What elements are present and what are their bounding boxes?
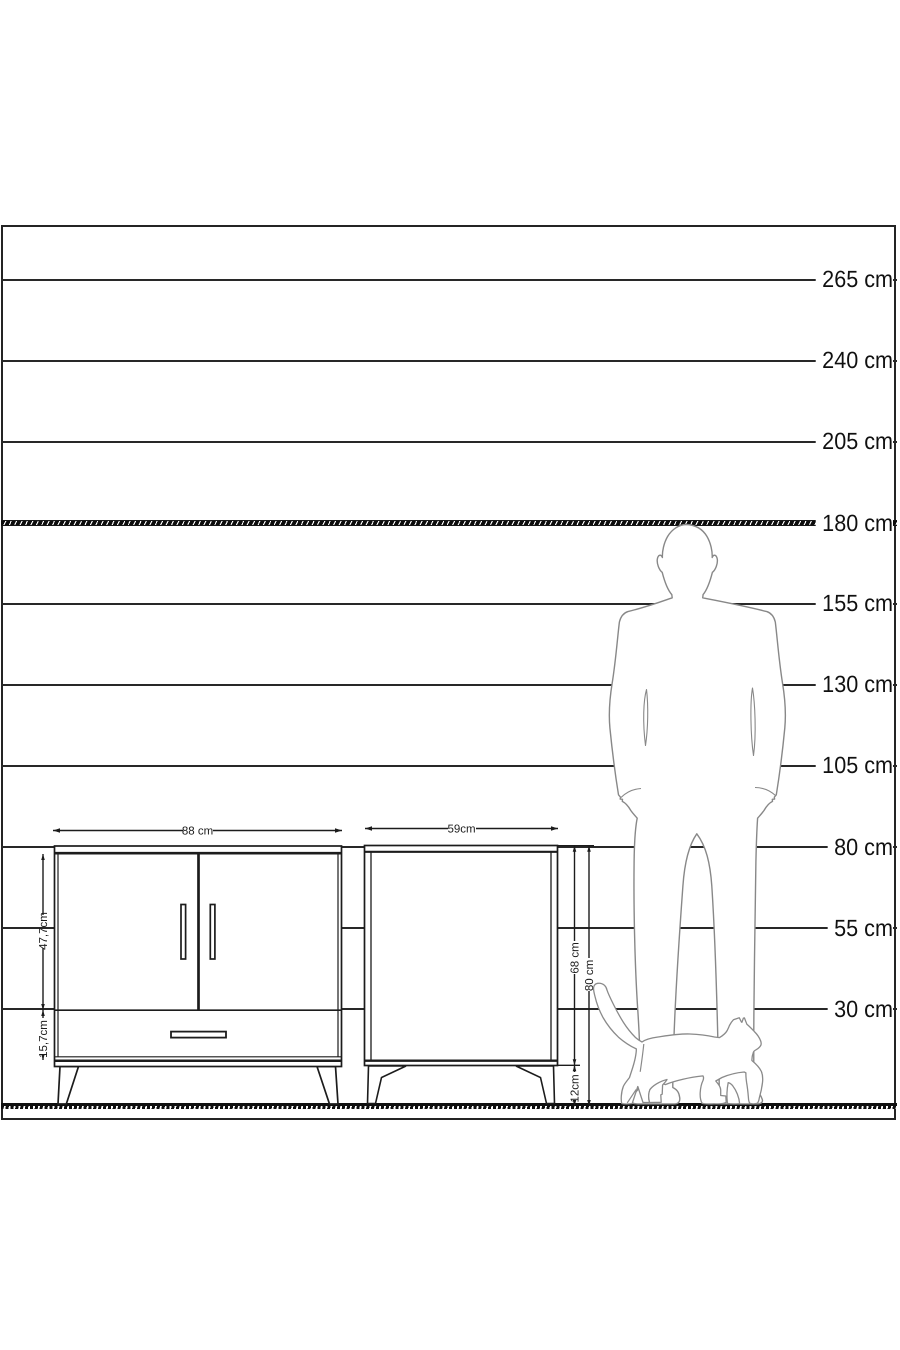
svg-text:59cm: 59cm: [447, 824, 475, 836]
svg-text:80 cm: 80 cm: [584, 960, 596, 991]
svg-text:47,7cm: 47,7cm: [38, 912, 50, 950]
svg-text:15,7cm: 15,7cm: [38, 1020, 50, 1058]
svg-text:12cm: 12cm: [570, 1074, 582, 1102]
svg-text:88 cm: 88 cm: [182, 826, 213, 838]
svg-text:68 cm: 68 cm: [570, 942, 582, 973]
